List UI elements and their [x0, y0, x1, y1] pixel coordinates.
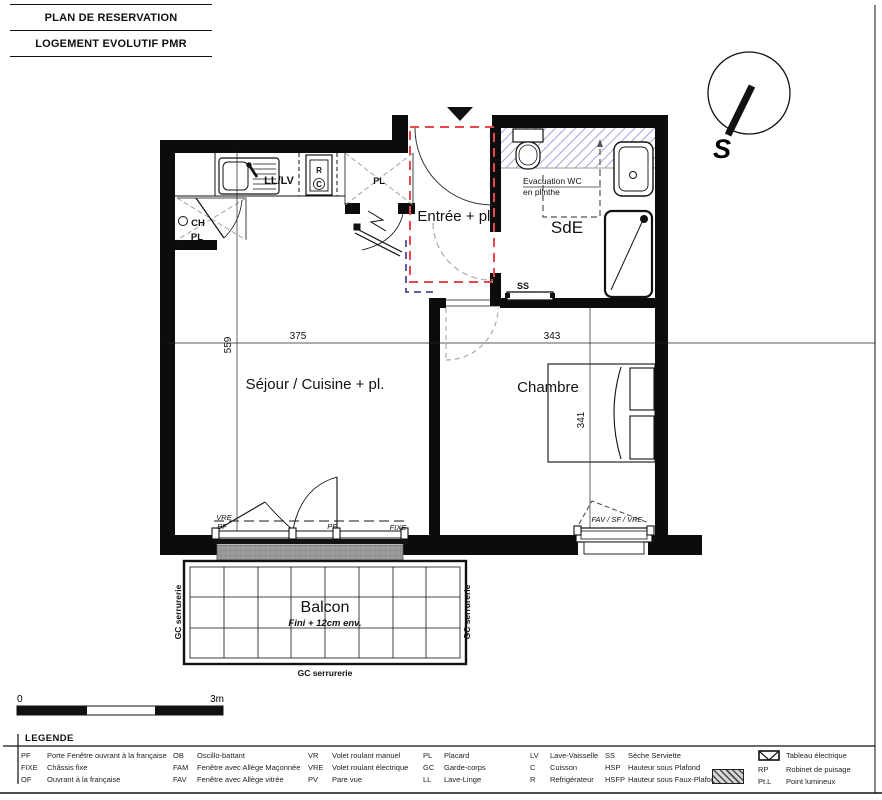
label-window-fixe: FIXE	[390, 523, 408, 532]
label-window-pf-left: PF	[217, 522, 227, 531]
legend-label: Refrigérateur	[550, 774, 594, 786]
legend-label: Point lumineux	[786, 776, 835, 788]
legend-label: Placard	[444, 750, 469, 762]
legend-abbr: FIXE	[21, 762, 47, 774]
legend-column-7: Tableau électrique RPRobinet de puisage …	[758, 750, 851, 788]
legend-abbr: LL	[423, 774, 444, 786]
legend-label: Tableau électrique	[786, 750, 847, 764]
label-pl-kitchen: PL	[373, 176, 385, 186]
label-window-pf-mid: PF	[327, 522, 337, 531]
entrance-door-swing	[415, 128, 492, 205]
legend-abbr: RP	[758, 764, 786, 776]
hsfp-hatch-swatch	[712, 769, 744, 784]
legend-abbr: HSP	[605, 762, 628, 774]
legend-label: Volet roulant manuel	[332, 750, 400, 762]
label-ll-lv: LL/LV	[264, 175, 294, 187]
bathroom	[501, 128, 655, 300]
label-evacuation-2: en plinthe	[523, 187, 560, 197]
dim-sejour-height: 559	[223, 336, 234, 353]
dim-sejour-width: 375	[290, 331, 307, 342]
legend-label: Robinet de puisage	[786, 764, 851, 776]
legend-title: LEGENDE	[25, 733, 74, 744]
dim-chambre-height: 341	[576, 411, 587, 428]
legend-label: Châssis fixe	[47, 762, 87, 774]
toilet	[513, 129, 543, 169]
legend-abbr: C	[530, 762, 550, 774]
legend-label: Sèche Serviette	[628, 750, 681, 762]
legend-abbr: PF	[21, 750, 47, 762]
entrance-arrow-icon	[447, 107, 473, 121]
legend-abbr: FAV	[173, 774, 197, 786]
label-gc-left: GC serrurerie	[173, 584, 183, 639]
label-c: C	[316, 180, 322, 189]
label-ch: CH	[191, 218, 205, 229]
room-label-entree: Entrée + pl.	[417, 208, 494, 225]
scale-end: 3m	[210, 694, 224, 705]
dimensions	[167, 150, 875, 537]
legend-label: Hauteur sous Plafond	[628, 762, 700, 774]
cooking-fridge-unit	[306, 155, 332, 195]
compass: S	[708, 52, 790, 164]
entry-zone	[406, 107, 494, 292]
room-label-sejour: Séjour / Cuisine + pl.	[246, 376, 385, 393]
label-window-chambre: FAV / SF / VRE	[592, 515, 644, 524]
tableau-electrique-icon	[758, 750, 786, 764]
dim-chambre-width: 343	[544, 331, 561, 342]
legend-abbr: PV	[308, 774, 332, 786]
legend-abbr: Pt.L	[758, 776, 786, 788]
legend-column-2: OBOscillo-battant FAMFenêtre avec Allège…	[173, 750, 300, 786]
legend-abbr: OB	[173, 750, 197, 762]
bedroom-door-swing	[446, 308, 498, 360]
legend-column-6: SSSèche Serviette HSPHauteur sous Plafon…	[605, 750, 719, 786]
label-window-vre: VRE	[216, 513, 232, 522]
legend-label: Garde-corps	[444, 762, 486, 774]
legend-abbr: VR	[308, 750, 332, 762]
legend-column-5: LVLave-Vaisselle CCuisson RRefrigérateur	[530, 750, 598, 786]
scale-start: 0	[17, 694, 23, 705]
legend-label: Porte Fenêtre ouvrant à la française	[47, 750, 167, 762]
balcon-note: Fini + 12cm env.	[288, 618, 361, 629]
room-label-balcon: Balcon	[301, 599, 350, 616]
legend-column-4: PLPlacard GCGarde-corps LLLave-Linge	[423, 750, 486, 786]
label-pl-entry: PL	[191, 232, 203, 243]
washbasin	[614, 142, 653, 196]
legend-column-3: VRVolet roulant manuel VREVolet roulant …	[308, 750, 408, 786]
legend-label: Oscillo-battant	[197, 750, 245, 762]
legend-abbr: PL	[423, 750, 444, 762]
legend-label: Cuisson	[550, 762, 577, 774]
legend-label: Fenêtre avec Allège Maçonnée	[197, 762, 300, 774]
balcony-threshold	[217, 545, 403, 560]
label-r: R	[316, 166, 322, 175]
legend-abbr: VRE	[308, 762, 332, 774]
floor-plan-drawing: S	[0, 0, 882, 800]
room-label-sde: SdE	[551, 218, 583, 237]
room-label-chambre: Chambre	[517, 379, 579, 396]
label-ss: SS	[517, 281, 529, 291]
label-gc-bottom: GC serrurerie	[298, 668, 353, 678]
towel-rail	[505, 292, 555, 300]
legend-abbr: FAM	[173, 762, 197, 774]
french-door-swings	[217, 477, 337, 530]
legend-label: Volet roulant électrique	[332, 762, 408, 774]
legend-label: Lave-Linge	[444, 774, 481, 786]
bathroom-door-swing	[433, 223, 493, 280]
sejour-window-frame	[214, 531, 408, 538]
legend-abbr: SS	[605, 750, 628, 762]
legend-label: Hauteur sous Faux-Plafond	[628, 774, 719, 786]
legend-abbr: LV	[530, 750, 550, 762]
legend-label: Fenêtre avec Allège vitrée	[197, 774, 284, 786]
label-evacuation-1: Evacuation WC	[523, 176, 582, 186]
niche-door	[354, 211, 403, 256]
scale-bar: 0 3m	[17, 694, 224, 715]
legend-abbr: R	[530, 774, 550, 786]
legend-label: Lave-Vaisselle	[550, 750, 598, 762]
floor-plan-page: PLAN DE RESERVATION LOGEMENT EVOLUTIF PM…	[0, 0, 882, 800]
shower	[605, 211, 652, 297]
legend-abbr: HSFP	[605, 774, 628, 786]
heater-closet	[177, 198, 246, 240]
legend-abbr: OF	[21, 774, 47, 786]
legend-abbr: GC	[423, 762, 444, 774]
label-gc-right: GC serrurerie	[462, 584, 472, 639]
compass-south-label: S	[713, 134, 731, 164]
chambre-window	[574, 501, 654, 554]
legend-label: Ouvrant à la française	[47, 774, 120, 786]
legend-column-1: PFPorte Fenêtre ouvrant à la française F…	[21, 750, 167, 786]
legend-label: Pare vue	[332, 774, 362, 786]
